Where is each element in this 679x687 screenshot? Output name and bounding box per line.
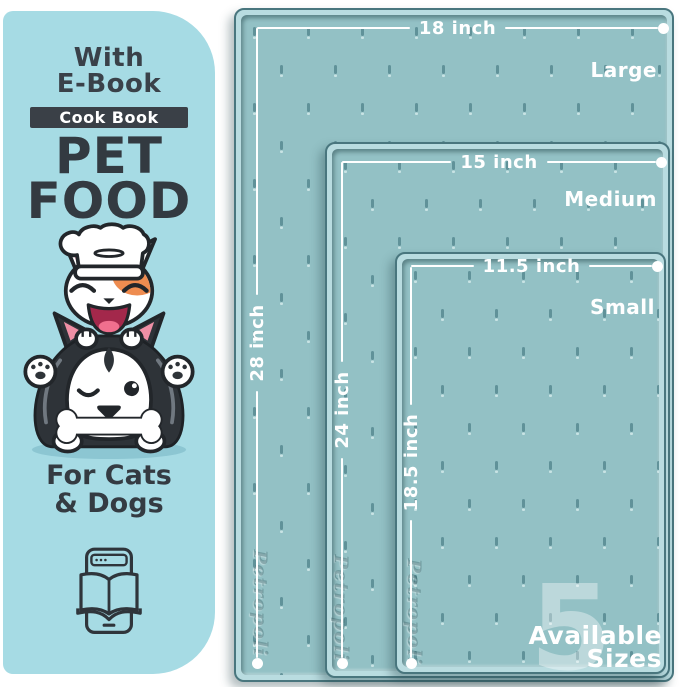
dimension-endpoint-dot <box>337 658 348 669</box>
dimension-endpoint-dot <box>252 658 263 669</box>
dimension-endpoint-dot <box>656 157 667 168</box>
left-panel: With E-Book Cook Book PET FOOD <box>3 11 215 674</box>
dimension-endpoint-dot <box>658 23 669 34</box>
product-image: With E-Book Cook Book PET FOOD <box>0 0 679 687</box>
width-label-small: 11.5 inch <box>474 256 590 277</box>
audience-note-line2: & Dogs <box>46 490 172 518</box>
width-label-medium: 15 inch <box>451 152 546 173</box>
size-label-medium: Medium <box>564 187 657 211</box>
dimension-endpoint-dot <box>652 261 663 272</box>
dimension-endpoint-dot <box>406 658 417 669</box>
ebook-note-line1: With <box>57 45 161 71</box>
width-dimension-large: 18 inch <box>257 18 669 38</box>
ebook-tablet-icon <box>69 546 149 642</box>
height-label-medium: 24 inch <box>332 362 353 457</box>
audience-note-line1: For Cats <box>46 462 172 490</box>
size-label-small: Small <box>590 295 655 319</box>
height-dimension-medium: 24 inch <box>332 162 352 669</box>
audience-note: For Cats & Dogs <box>46 462 172 518</box>
available-sizes-text: Available Sizes <box>528 624 662 670</box>
height-label-small: 18.5 inch <box>401 405 422 521</box>
height-dimension-large: 28 inch <box>247 28 267 669</box>
width-label-large: 18 inch <box>410 18 505 39</box>
panel-title: PET FOOD <box>27 134 192 224</box>
available-sizes-line2: Sizes <box>528 647 662 670</box>
cookbook-badge: Cook Book <box>30 107 188 128</box>
width-dimension-medium: 15 inch <box>342 152 667 172</box>
chef-cat-dog-illustration <box>15 225 203 460</box>
ebook-note-line2: E-Book <box>57 71 161 97</box>
size-label-large: Large <box>591 58 657 82</box>
height-dimension-small: 18.5 inch <box>401 267 421 669</box>
panel-title-line2: FOOD <box>27 179 192 224</box>
width-dimension-small: 11.5 inch <box>411 256 663 276</box>
height-label-large: 28 inch <box>247 295 268 390</box>
ebook-note: With E-Book <box>57 45 161 97</box>
